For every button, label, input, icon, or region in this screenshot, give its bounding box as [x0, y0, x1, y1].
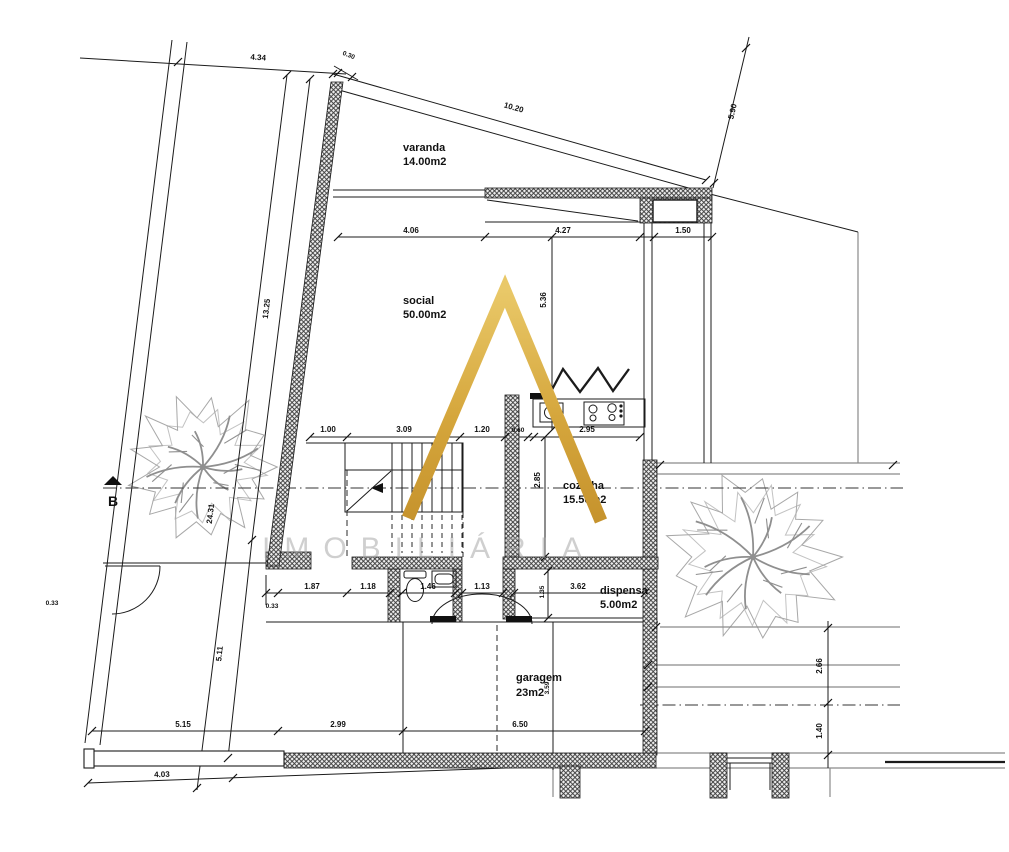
- dim-1-18: 1.18: [360, 582, 376, 591]
- dim-1-50: 1.50: [675, 226, 691, 235]
- room-dispensa-name: dispensa: [600, 585, 649, 597]
- stove: [584, 402, 624, 425]
- burner: [609, 415, 615, 421]
- toilet-tank: [404, 571, 426, 578]
- floor-plan-drawing: B 4.34 0.30 10.20 5.90 4.06 4.27 1.50 5.…: [0, 0, 1009, 852]
- dim-0-30: 0.30: [341, 50, 356, 61]
- room-garagem-area: 23m2: [516, 687, 544, 699]
- dim-1-46: 1.46: [420, 582, 436, 591]
- dim-13-25: 13.25: [261, 298, 272, 320]
- street-wall-cap: [84, 749, 94, 768]
- dim-0-33-wall: 0.33: [266, 603, 279, 610]
- dim-0-33-site: 0.33: [46, 600, 59, 607]
- dim-2-66: 2.66: [815, 658, 824, 674]
- dim-5-90: 5.90: [726, 102, 738, 120]
- room-social-area: 50.00m2: [403, 309, 446, 321]
- section-arrow-icon: [104, 476, 122, 485]
- door-leaf: [430, 616, 456, 622]
- dim-24-31: 24.31: [205, 503, 216, 525]
- hood-zigzag-symbol: [548, 368, 629, 397]
- washbasin-bowl: [435, 574, 453, 584]
- dim-5-36: 5.36: [539, 292, 548, 308]
- dim-4-03: 4.03: [154, 770, 170, 780]
- stove-knob: [620, 415, 622, 417]
- dim-4-27: 4.27: [555, 226, 571, 235]
- room-social-name: social: [403, 295, 434, 307]
- room-dispensa-area: 5.00m2: [600, 599, 637, 611]
- stair-direction-arrow-icon: [371, 483, 383, 493]
- burner: [590, 415, 596, 421]
- dim-0-60: 0.60: [512, 427, 525, 434]
- stove-knob: [620, 410, 622, 412]
- dim-3-62: 3.62: [570, 582, 586, 591]
- dim-6-50: 6.50: [512, 720, 528, 729]
- stove-knob: [620, 405, 622, 407]
- dim-1-00: 1.00: [320, 425, 336, 434]
- dim-4-06: 4.06: [403, 226, 419, 235]
- site-gray-lines: [553, 232, 1005, 797]
- door-swings: [112, 566, 532, 624]
- dimension-ticks: [84, 44, 897, 792]
- dim-1-87: 1.87: [304, 582, 320, 591]
- dim-1-40: 1.40: [815, 723, 824, 739]
- dim-2-99: 2.99: [330, 720, 346, 729]
- burner: [608, 404, 616, 412]
- dim-2-95: 2.95: [579, 425, 595, 434]
- dim-5-15: 5.15: [175, 720, 191, 729]
- door-leaf: [506, 616, 532, 622]
- dim-1-20: 1.20: [474, 425, 490, 434]
- watermark-text: IMOBILIÁRIA: [262, 532, 596, 565]
- watermark: IMOBILIÁRIA: [262, 291, 601, 565]
- section-marker-b: B: [104, 476, 383, 509]
- dim-3-09: 3.09: [396, 425, 412, 434]
- window-opening: [653, 200, 697, 222]
- dim-1-13: 1.13: [474, 582, 490, 591]
- dim-2-85: 2.85: [533, 472, 542, 488]
- room-garagem-name: garagem: [516, 672, 562, 684]
- section-label: B: [108, 493, 118, 509]
- dim-5-11: 5.11: [214, 645, 225, 662]
- dim-1-35: 1.35: [539, 585, 546, 598]
- openings: [84, 200, 697, 768]
- street-wall: [86, 751, 284, 766]
- burner: [589, 405, 597, 413]
- room-varanda-area: 14.00m2: [403, 156, 446, 168]
- room-varanda-name: varanda: [403, 142, 446, 154]
- dim-4-34: 4.34: [250, 52, 267, 62]
- floor-plan-canvas: B 4.34 0.30 10.20 5.90 4.06 4.27 1.50 5.…: [0, 0, 1009, 852]
- dim-10-20: 10.20: [503, 101, 525, 115]
